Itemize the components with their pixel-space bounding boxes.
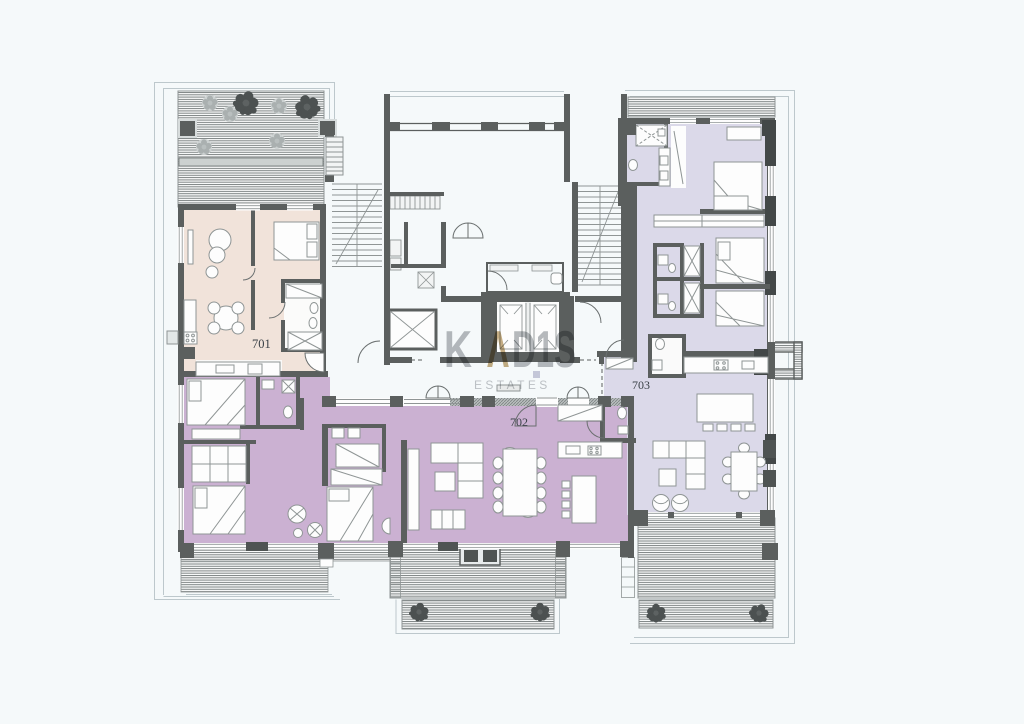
svg-text:ESTATES: ESTATES [474,378,551,392]
svg-text:703: 703 [632,378,650,392]
svg-text:701: 701 [252,337,271,351]
svg-text:Λ: Λ [487,321,509,379]
svg-text:D1S: D1S [512,321,576,379]
svg-text:K: K [444,321,472,379]
svg-text:702: 702 [510,415,528,429]
